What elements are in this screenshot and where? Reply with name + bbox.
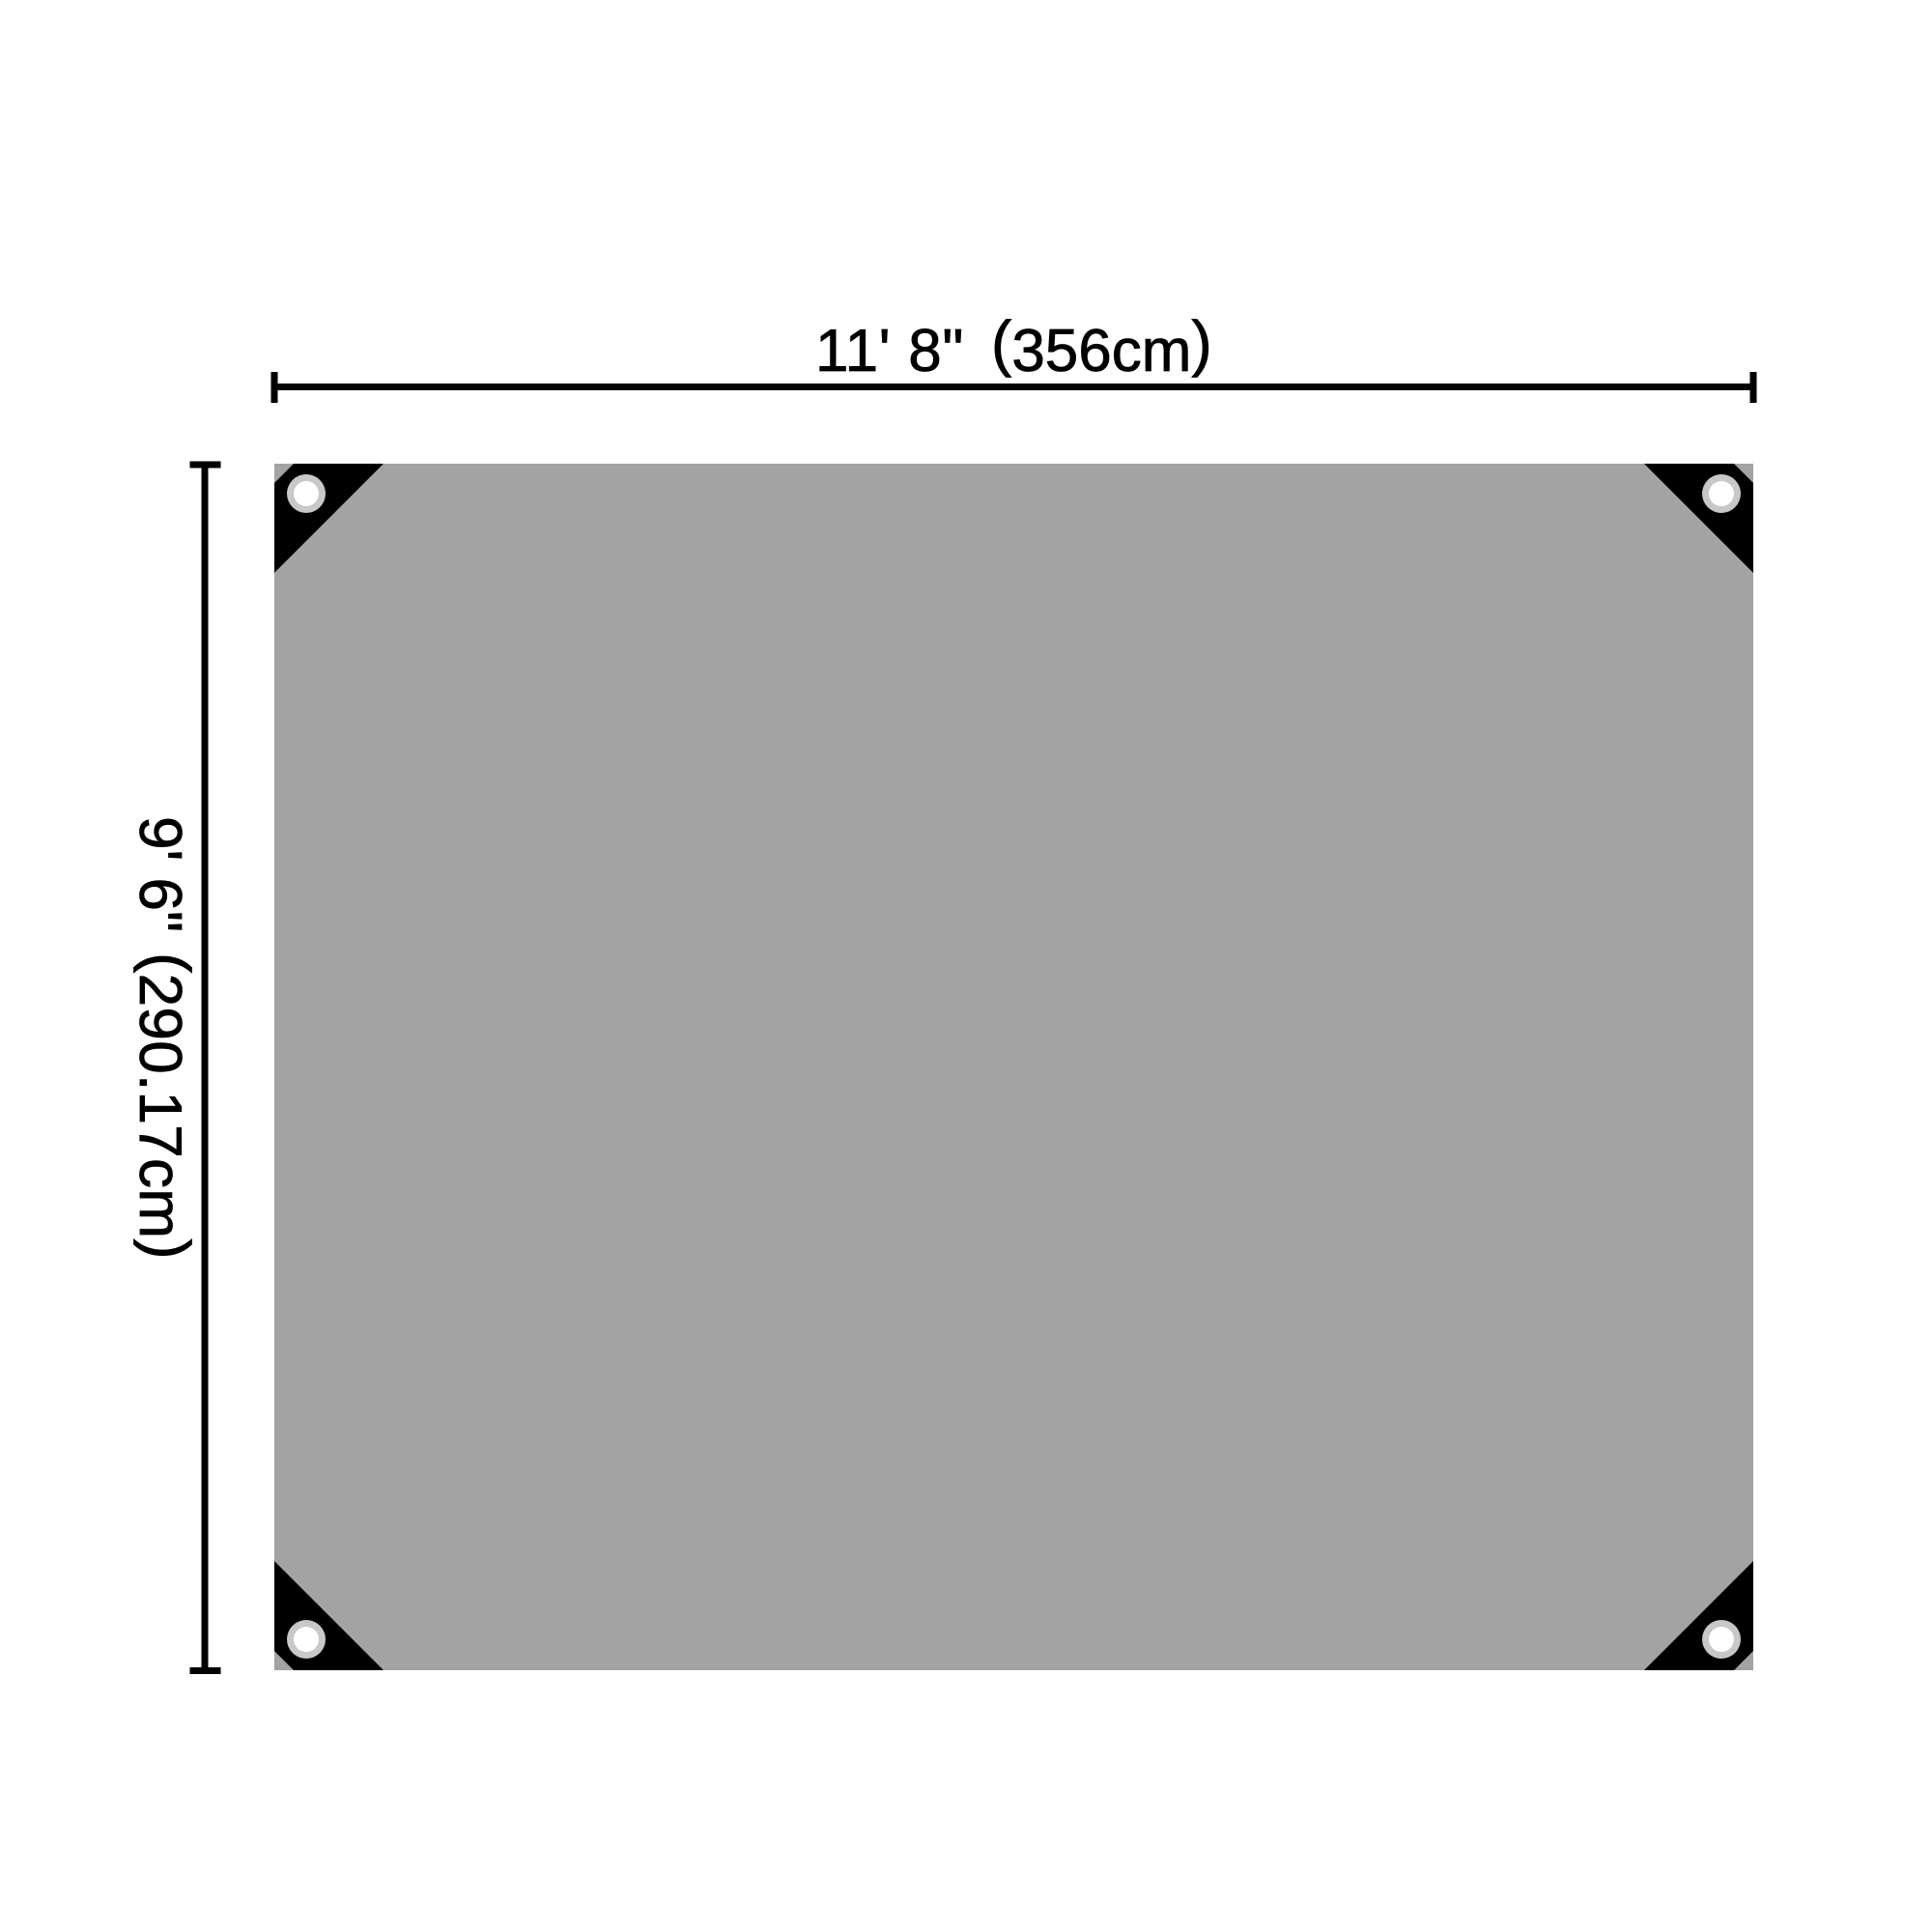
svg-text:11' 8": 11' 8" <box>815 318 964 384</box>
svg-text:9' 6": 9' 6" <box>127 816 193 932</box>
svg-text:(356cm): (356cm) <box>991 308 1212 384</box>
svg-text:(290.17cm): (290.17cm) <box>127 952 203 1260</box>
